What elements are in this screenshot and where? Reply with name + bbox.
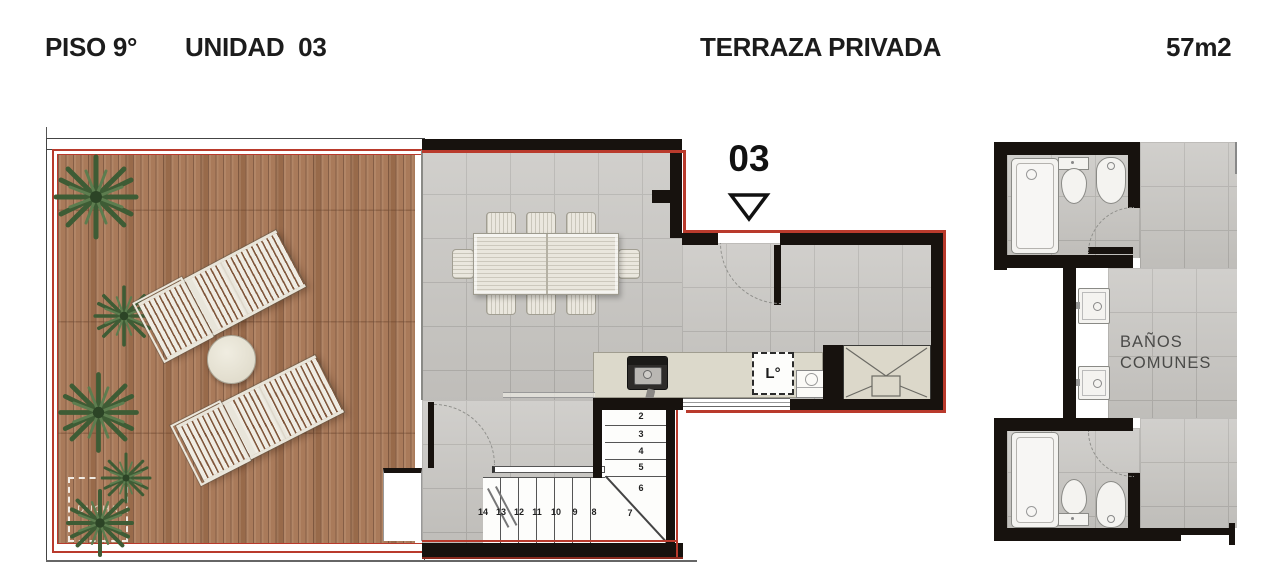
wall [994, 142, 1140, 155]
wall [931, 233, 943, 412]
plant-icon [51, 365, 146, 460]
red-outline [684, 230, 945, 233]
wall [422, 543, 683, 557]
wall [682, 233, 718, 245]
wall [1128, 142, 1140, 208]
small-sink-divider [797, 387, 825, 388]
washbasin [1078, 288, 1110, 324]
laundry-space: L° [752, 352, 794, 395]
plant-icon [46, 147, 146, 247]
area-label: 57m2 [1166, 32, 1231, 63]
stair-step-number: 4 [634, 446, 648, 456]
shadow-line [46, 560, 697, 562]
bidet [1096, 481, 1126, 528]
stair-step-number: 2 [634, 411, 648, 421]
wall [994, 528, 1181, 541]
stair-step-number: 3 [634, 429, 648, 439]
page-title: TERRAZA PRIVADA [700, 32, 941, 63]
wall [593, 398, 602, 478]
wall-thin-extension [1181, 528, 1233, 535]
stair-step-number: 14 [476, 507, 490, 517]
round-side-table [207, 335, 256, 384]
floorplan-page: PISO 9° UNIDAD 03 TERRAZA PRIVADA 57m2 D… [0, 0, 1280, 578]
kitchen-sink-ledge [628, 357, 667, 365]
closet-panel-lines [844, 346, 929, 399]
lounge-chair-seam [258, 385, 289, 439]
bathtub [1011, 158, 1059, 254]
wall [994, 418, 1007, 541]
red-outline [943, 230, 946, 413]
wall [780, 233, 931, 245]
dining-chair [618, 249, 640, 279]
baths-floor [1140, 418, 1237, 528]
wall [994, 255, 1133, 268]
floor-label: PISO 9° [45, 32, 137, 63]
red-outline [422, 540, 678, 542]
stair-step-number: 11 [530, 507, 544, 517]
wall-end-cap [1229, 523, 1235, 545]
washbasin-drain [1093, 302, 1102, 311]
window-band [683, 398, 790, 407]
stair-step-number: 13 [494, 507, 508, 517]
common-baths-label: BAÑOS COMUNES [1120, 332, 1250, 374]
stair-step-number: 8 [587, 507, 601, 517]
dining-chair [452, 249, 474, 279]
wall [666, 398, 675, 543]
washbasin-drain [1093, 379, 1102, 388]
toilet-button [1071, 517, 1074, 520]
terrace-glass-door [383, 468, 422, 541]
wall-stub [652, 190, 670, 203]
red-outline [676, 410, 678, 557]
common-baths-line2: COMUNES [1120, 353, 1250, 374]
toilet-button [1071, 161, 1074, 164]
bidet-faucet-icon [1107, 162, 1115, 170]
toilet-tank [1058, 513, 1089, 526]
unit-label: UNIDAD 03 [185, 32, 326, 63]
stair-step-number: 12 [512, 507, 526, 517]
washbasin [1078, 366, 1110, 400]
lounge-chair-seam [219, 261, 251, 315]
glass-wall-line [421, 150, 423, 400]
red-outline [683, 150, 686, 233]
entrance-arrow-icon [727, 192, 771, 222]
red-outline [422, 150, 684, 153]
stair-step-number: 7 [623, 508, 637, 518]
kitchen-sink [627, 356, 668, 390]
wall [994, 142, 1007, 270]
small-sink-drain [805, 373, 818, 386]
stair-step-number: 10 [549, 507, 563, 517]
baths-floor [1140, 142, 1237, 268]
unit-number: 03 [706, 138, 792, 180]
bathtub-drain [1026, 169, 1037, 180]
wall [1063, 268, 1076, 420]
bath-door-leaf [1088, 424, 1133, 431]
wall [823, 345, 843, 401]
closet [843, 345, 931, 401]
counter-edge-lines [503, 392, 595, 398]
bidet-faucet-icon [1107, 515, 1115, 523]
boundary-tick [1235, 142, 1237, 174]
laundry-label: L° [765, 365, 780, 382]
dining-table-seam [546, 234, 548, 294]
wall [422, 139, 682, 150]
bathtub [1011, 432, 1059, 528]
stair-guard-rail [492, 466, 606, 473]
kitchen-small-sink [796, 370, 826, 398]
dining-table [473, 233, 619, 295]
toilet-bowl [1061, 479, 1087, 515]
common-baths-line1: BAÑOS [1120, 332, 1250, 353]
red-outline [686, 410, 946, 413]
red-outline [422, 557, 683, 559]
kitchen-faucet-icon [643, 370, 652, 379]
stair-step-number: 6 [634, 483, 648, 493]
stair-step-number: 9 [568, 507, 582, 517]
bidet [1096, 157, 1126, 204]
stair-step-number: 5 [634, 462, 648, 472]
bathtub-drain [1026, 506, 1037, 517]
plant-icon [60, 483, 140, 563]
wall [670, 139, 682, 238]
